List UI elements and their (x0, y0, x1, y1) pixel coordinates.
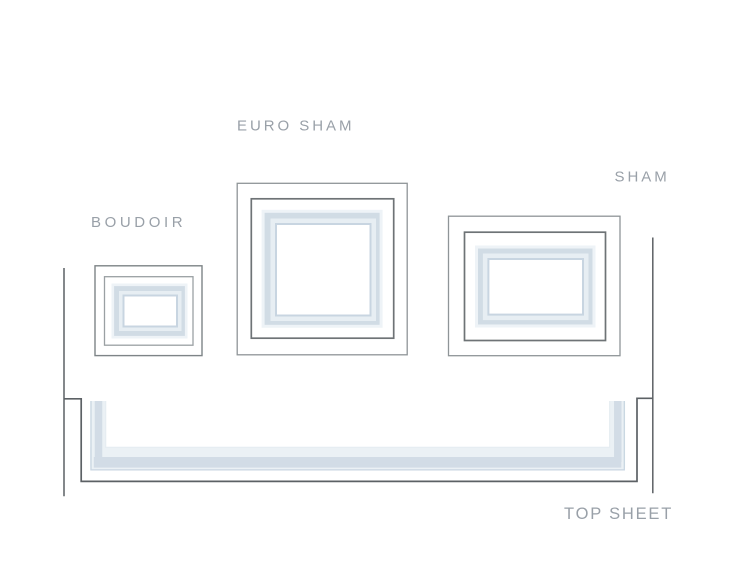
svg-text:TOP SHEET: TOP SHEET (564, 505, 673, 523)
svg-text:EURO SHAM: EURO SHAM (237, 118, 354, 135)
svg-text:SHAM: SHAM (615, 169, 670, 186)
svg-text:BOUDOIR: BOUDOIR (91, 214, 186, 231)
